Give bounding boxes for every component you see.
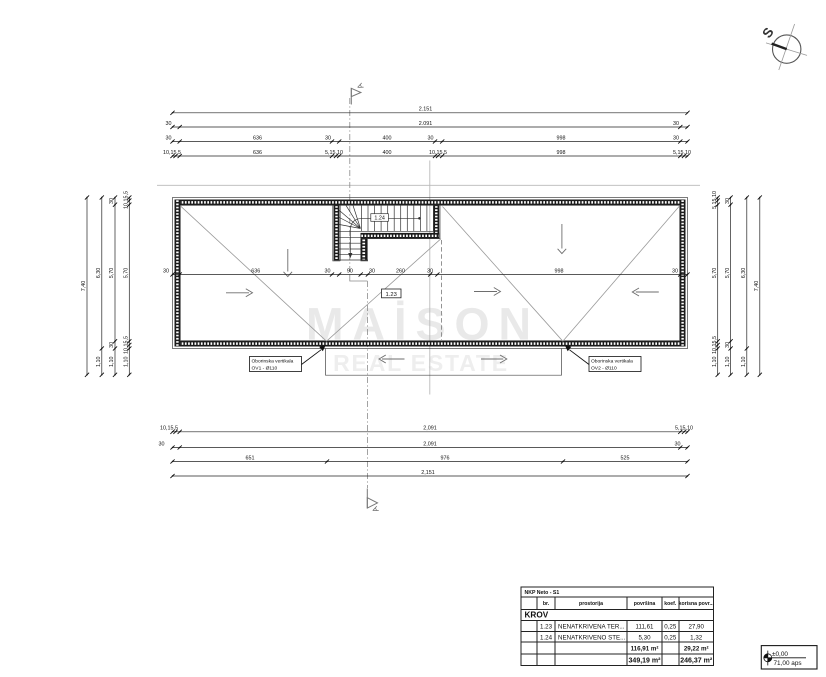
svg-text:10,15,5: 10,15,5 — [712, 336, 718, 354]
svg-text:30: 30 — [166, 121, 172, 127]
svg-text:5,70: 5,70 — [725, 268, 731, 279]
svg-text:1,32: 1,32 — [690, 634, 703, 641]
svg-text:br.: br. — [543, 601, 550, 607]
svg-text:30: 30 — [109, 342, 115, 348]
svg-text:1,10: 1,10 — [109, 356, 115, 367]
svg-text:1,10: 1,10 — [741, 356, 747, 367]
svg-text:30: 30 — [325, 135, 331, 141]
svg-text:površina: površina — [634, 601, 656, 607]
svg-text:998: 998 — [555, 268, 564, 274]
svg-text:636: 636 — [253, 150, 262, 156]
svg-text:976: 976 — [441, 455, 450, 461]
svg-text:1,10: 1,10 — [96, 356, 102, 367]
svg-text:30: 30 — [427, 268, 433, 274]
svg-text:30: 30 — [672, 268, 678, 274]
svg-text:korisna povr...: korisna povr... — [679, 601, 715, 607]
svg-text:±0,00: ±0,00 — [772, 651, 788, 658]
svg-text:246,37 m²: 246,37 m² — [680, 658, 713, 665]
svg-text:0,25: 0,25 — [664, 624, 677, 631]
svg-text:30: 30 — [159, 441, 165, 447]
svg-text:5,70: 5,70 — [109, 268, 115, 279]
svg-text:30: 30 — [673, 121, 679, 127]
svg-text:KROV: KROV — [525, 611, 549, 620]
svg-text:2.151: 2.151 — [419, 107, 433, 113]
svg-text:400: 400 — [383, 135, 392, 141]
svg-text:30: 30 — [675, 441, 681, 447]
svg-text:10,15,5: 10,15,5 — [124, 336, 130, 354]
svg-text:1.23: 1.23 — [386, 292, 397, 298]
svg-text:636: 636 — [253, 135, 262, 141]
svg-text:1,10: 1,10 — [712, 356, 718, 367]
svg-text:30: 30 — [428, 135, 434, 141]
svg-text:6,30: 6,30 — [741, 268, 747, 279]
svg-text:30: 30 — [163, 268, 169, 274]
svg-text:OV2 - Ø110: OV2 - Ø110 — [591, 366, 617, 372]
svg-text:116,91 m²: 116,91 m² — [631, 646, 659, 653]
svg-text:349,19 m²: 349,19 m² — [629, 658, 662, 665]
svg-text:998: 998 — [557, 135, 566, 141]
svg-text:1,10: 1,10 — [725, 356, 731, 367]
svg-text:1.24: 1.24 — [540, 634, 553, 641]
svg-text:260: 260 — [396, 268, 405, 274]
svg-text:2.091: 2.091 — [419, 121, 433, 127]
svg-text:111,61: 111,61 — [635, 624, 654, 631]
svg-text:29,22 m²: 29,22 m² — [684, 646, 709, 653]
svg-text:636: 636 — [251, 268, 260, 274]
svg-text:90: 90 — [347, 268, 353, 274]
svg-text:1.24: 1.24 — [374, 216, 385, 222]
svg-text:1,10: 1,10 — [124, 356, 130, 367]
svg-text:30: 30 — [109, 198, 115, 204]
svg-text:5,70: 5,70 — [124, 268, 130, 279]
svg-text:10,15,5: 10,15,5 — [124, 191, 130, 209]
svg-text:REAL ESTATE: REAL ESTATE — [333, 350, 509, 376]
svg-text:6,30: 6,30 — [96, 268, 102, 279]
svg-text:30: 30 — [725, 198, 731, 204]
svg-text:71,00 aps: 71,00 aps — [774, 660, 802, 667]
svg-text:0,25: 0,25 — [664, 634, 677, 641]
svg-text:NKP Neto - S1: NKP Neto - S1 — [525, 590, 560, 596]
svg-text:525: 525 — [621, 455, 630, 461]
svg-text:30: 30 — [725, 342, 731, 348]
svg-text:10,15,5: 10,15,5 — [163, 150, 181, 156]
svg-text:NENATKRIVENA TER...: NENATKRIVENA TER... — [558, 624, 625, 631]
svg-text:5,15,10: 5,15,10 — [325, 150, 343, 156]
svg-text:5,15,10: 5,15,10 — [673, 150, 691, 156]
svg-text:30: 30 — [369, 268, 375, 274]
svg-text:7,40: 7,40 — [754, 281, 760, 292]
svg-text:OV1 - Ø110: OV1 - Ø110 — [252, 366, 278, 372]
svg-text:10,15,5: 10,15,5 — [160, 426, 178, 432]
svg-text:Oborinska vertikala: Oborinska vertikala — [252, 359, 294, 365]
svg-text:10,15,5: 10,15,5 — [429, 150, 447, 156]
svg-text:2,091: 2,091 — [423, 426, 437, 432]
svg-text:2,151: 2,151 — [421, 470, 435, 476]
svg-text:2,091: 2,091 — [423, 441, 437, 447]
svg-text:Oborinska vertikala: Oborinska vertikala — [591, 359, 633, 365]
svg-text:5,15,10: 5,15,10 — [675, 426, 693, 432]
svg-text:5,70: 5,70 — [712, 268, 718, 279]
svg-text:651: 651 — [246, 455, 255, 461]
svg-text:30: 30 — [673, 135, 679, 141]
svg-text:5,30: 5,30 — [638, 634, 651, 641]
svg-text:998: 998 — [557, 150, 566, 156]
svg-text:7,40: 7,40 — [81, 281, 87, 292]
svg-text:30: 30 — [166, 135, 172, 141]
svg-text:27,90: 27,90 — [688, 624, 704, 631]
svg-text:400: 400 — [383, 150, 392, 156]
svg-text:5,15,10: 5,15,10 — [712, 191, 718, 209]
svg-text:30: 30 — [325, 268, 331, 274]
svg-text:prostorija: prostorija — [579, 601, 603, 607]
svg-text:NENATKRIVENO STE...: NENATKRIVENO STE... — [558, 634, 626, 641]
svg-text:1.23: 1.23 — [540, 624, 553, 631]
svg-text:koef.: koef. — [664, 601, 677, 607]
